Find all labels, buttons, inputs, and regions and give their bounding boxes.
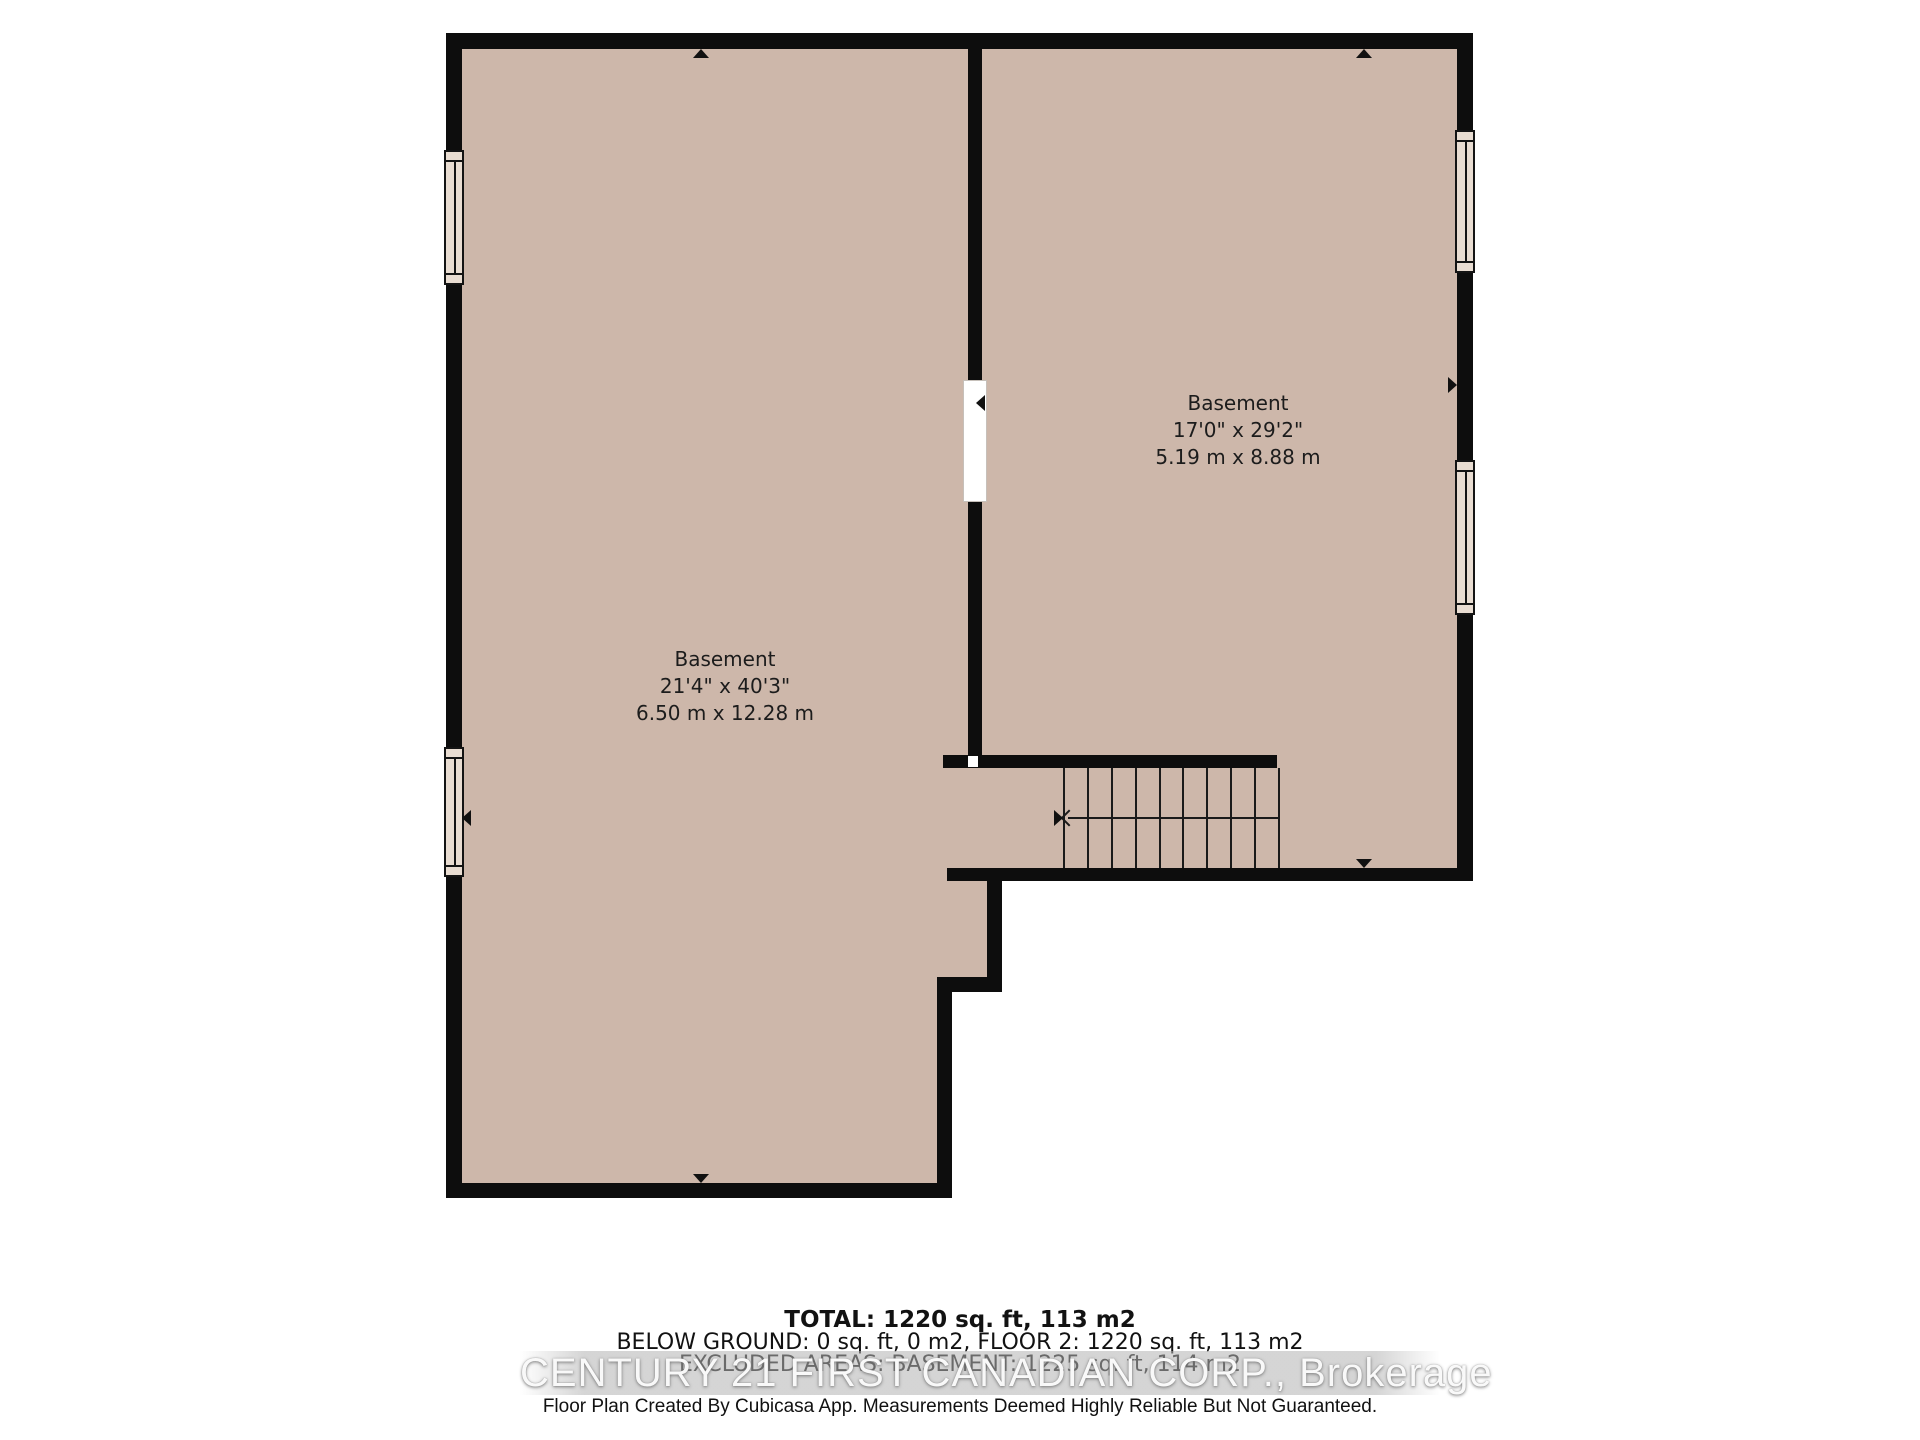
stair-direction-line xyxy=(1068,817,1280,819)
wall-notch-horizontal xyxy=(937,977,1002,992)
wall-left-middle xyxy=(446,285,462,747)
room-label-basement-right: Basement 17'0" x 29'2" 5.19 m x 8.88 m xyxy=(1155,390,1320,471)
floor-notch xyxy=(940,881,987,977)
window-left-lower xyxy=(444,747,464,877)
floor-left-room-lower xyxy=(462,977,937,1183)
wall-left-lower xyxy=(446,877,462,1198)
wall-marker-right-icon xyxy=(1448,377,1457,393)
wall-right-middle xyxy=(1457,273,1473,460)
wall-interior-upper xyxy=(968,49,982,382)
room-name: Basement xyxy=(636,646,814,673)
door-marker-icon xyxy=(976,395,985,411)
wall-left-upper xyxy=(446,33,462,150)
room-dims-imperial: 21'4" x 40'3" xyxy=(636,673,814,700)
wall-notch-vertical-a xyxy=(987,881,1002,992)
room-name: Basement xyxy=(1155,390,1320,417)
wall-stairs-bottom xyxy=(947,868,1473,881)
stair-entry-marker-icon xyxy=(1054,810,1063,826)
window-pane-icon xyxy=(454,161,456,274)
wall-marker-bottom-left-icon xyxy=(693,1174,709,1183)
window-pane-icon xyxy=(454,758,456,866)
window-right-lower xyxy=(1455,460,1475,615)
wall-interior-lower xyxy=(968,502,982,768)
floor-left-room-upper xyxy=(462,49,968,977)
window-right-upper xyxy=(1455,130,1475,273)
window-left-upper xyxy=(444,150,464,285)
wall-marker-top-left-icon xyxy=(693,49,709,58)
summary-total: TOTAL: 1220 sq. ft, 113 m2 xyxy=(0,1308,1920,1332)
wall-notch-vertical-b xyxy=(937,992,952,1198)
room-dims-metric: 6.50 m x 12.28 m xyxy=(636,700,814,727)
brokerage-watermark: CENTURY 21 FIRST CANADIAN CORP., Brokera… xyxy=(520,1351,1440,1395)
wall-junction-gap xyxy=(968,756,978,767)
wall-right-upper xyxy=(1457,33,1473,130)
floorplan-page: Basement 21'4" x 40'3" 6.50 m x 12.28 m … xyxy=(0,0,1920,1440)
wall-bottom-left-room xyxy=(446,1183,952,1198)
window-pane-icon xyxy=(1465,471,1467,604)
disclaimer-text: Floor Plan Created By Cubicasa App. Meas… xyxy=(0,1396,1920,1418)
wall-right-lower xyxy=(1457,615,1473,881)
wall-marker-top-right-icon xyxy=(1356,49,1372,58)
window-pane-icon xyxy=(1465,141,1467,262)
wall-stairs-top xyxy=(943,755,1277,768)
room-label-basement-left: Basement 21'4" x 40'3" 6.50 m x 12.28 m xyxy=(636,646,814,727)
wall-top xyxy=(446,33,1473,49)
room-dims-metric: 5.19 m x 8.88 m xyxy=(1155,444,1320,471)
room-dims-imperial: 17'0" x 29'2" xyxy=(1155,417,1320,444)
wall-marker-bottom-right-icon xyxy=(1356,859,1372,868)
wall-marker-left-icon xyxy=(462,810,471,826)
